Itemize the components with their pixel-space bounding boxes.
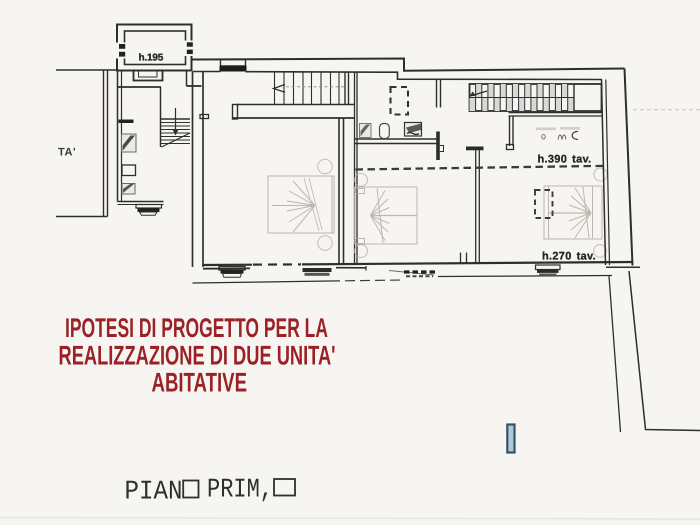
svg-text:IPOTESI DI PROGETTO PER LA: IPOTESI DI PROGETTO PER LA — [65, 313, 328, 343]
svg-text:REALIZZAZIONE DI DUE UNITA': REALIZZAZIONE DI DUE UNITA' — [59, 341, 336, 371]
svg-text:PRIM,: PRIM, — [207, 476, 273, 506]
svg-text:h.270tav.: h.270tav. — [542, 251, 596, 263]
svg-text:ABITATIVE: ABITATIVE — [152, 368, 248, 398]
svg-text:TA': TA' — [58, 147, 76, 159]
svg-text:PIAN: PIAN — [125, 478, 183, 508]
svg-text:h.390tav.: h.390tav. — [538, 154, 592, 166]
svg-text:h.195: h.195 — [139, 53, 164, 64]
